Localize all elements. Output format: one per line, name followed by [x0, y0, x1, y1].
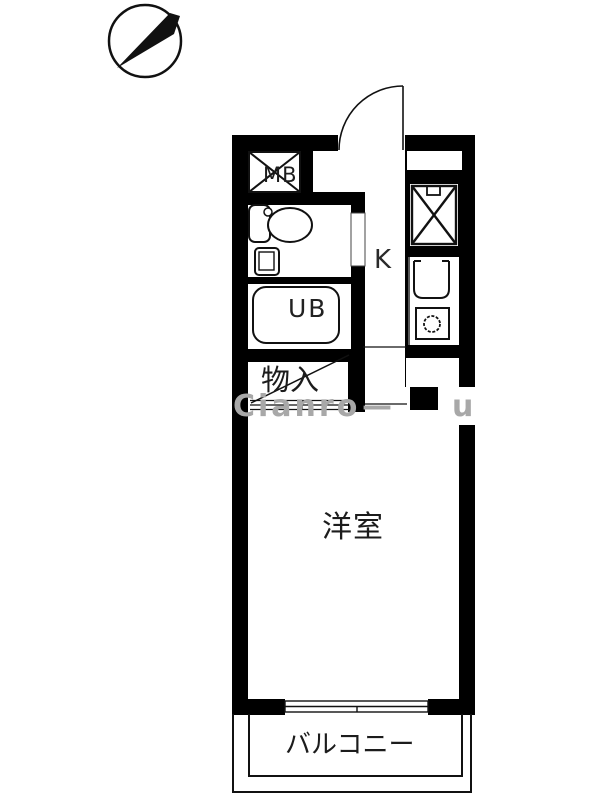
kitchen-label: K — [374, 247, 391, 273]
small-sink-icon — [255, 248, 279, 275]
watermark-text: — — [362, 389, 395, 424]
unit-bath-label: UB — [288, 296, 327, 321]
western-room-label: 洋室 — [322, 513, 384, 543]
wc-door — [351, 213, 365, 266]
toilet-icon — [249, 205, 312, 242]
balcony-label: バルコニー — [285, 732, 414, 758]
watermark-text: Cianro — [233, 389, 360, 424]
watermark-text: u — [452, 389, 476, 424]
floor-plan: MB K UB 物入 洋室 バルコニー Cianro — u — [0, 0, 600, 800]
door-swing-icon — [339, 86, 403, 150]
meter-box-label: MB — [263, 165, 298, 186]
north-arrow-icon — [109, 5, 181, 77]
